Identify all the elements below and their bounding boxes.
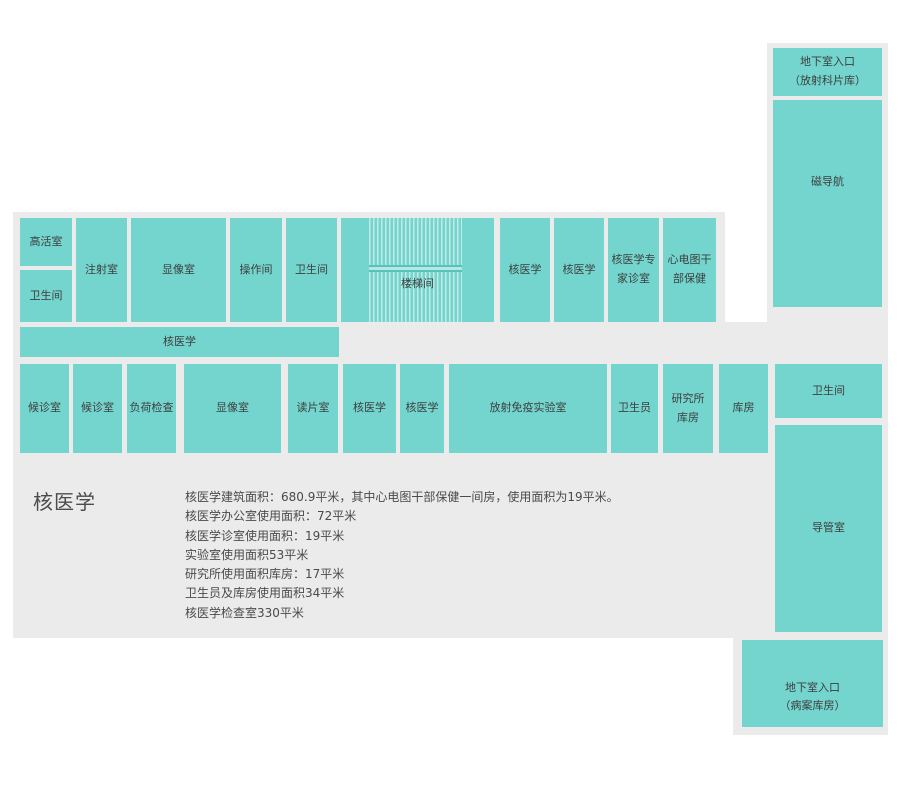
room-nuclear-medicine-1: 核医学 <box>500 218 550 322</box>
summary-title: 核医学 <box>33 486 96 515</box>
summary-line: 核医学检查室330平米 <box>185 604 619 623</box>
room-radioimmunoassay-lab: 放射免疫实验室 <box>449 364 607 453</box>
summary-line: 核医学办公室使用面积：72平米 <box>185 507 619 526</box>
room-magnetic-navigation: 磁导航 <box>773 100 882 307</box>
room-waiting-2: 候诊室 <box>73 364 122 453</box>
summary-line: 研究所使用面积库房：17平米 <box>185 565 619 584</box>
room-nuclear-medicine-corridor: 核医学 <box>20 327 339 357</box>
room-basement-entrance-film-library: 地下室入口 （放射科片库） <box>773 48 882 96</box>
room-imaging-2: 显像室 <box>184 364 281 453</box>
room-nuclear-medicine-2: 核医学 <box>554 218 604 322</box>
room-catheter: 导管室 <box>775 425 882 632</box>
room-nm-expert-clinic: 核医学专 家诊室 <box>608 218 659 322</box>
room-nuclear-medicine-3: 核医学 <box>343 364 396 453</box>
summary-line: 核医学诊室使用面积：19平米 <box>185 527 619 546</box>
room-stairwell: 楼梯间 <box>341 218 494 322</box>
room-toilet-2: 卫生间 <box>286 218 337 322</box>
room-film-reading: 读片室 <box>288 364 338 453</box>
room-injection: 注射室 <box>76 218 127 322</box>
room-toilet-right: 卫生间 <box>775 364 882 418</box>
summary-text-block: 核医学建筑面积：680.9平米，其中心电图干部保健一间房，使用面积为19平米。 … <box>185 488 619 623</box>
summary-line: 实验室使用面积53平米 <box>185 546 619 565</box>
stairwell-label: 楼梯间 <box>341 275 494 294</box>
room-sanitation-staff: 卫生员 <box>611 364 658 453</box>
room-toilet-1: 卫生间 <box>20 270 72 322</box>
room-high-activity: 高活室 <box>20 218 72 266</box>
stairwell-landing-divider <box>369 265 462 272</box>
room-ecg-cadre-care: 心电图干 部保健 <box>663 218 716 322</box>
room-stress-test: 负荷检查 <box>127 364 176 453</box>
room-waiting-1: 候诊室 <box>20 364 69 453</box>
room-nuclear-medicine-4: 核医学 <box>400 364 444 453</box>
room-imaging-1: 显像室 <box>131 218 226 322</box>
room-institute-storage: 研究所 库房 <box>663 364 713 453</box>
room-storage: 库房 <box>719 364 768 453</box>
room-basement-entrance-records: 地下室入口 （病案库房） <box>742 640 883 727</box>
summary-line: 核医学建筑面积：680.9平米，其中心电图干部保健一间房，使用面积为19平米。 <box>185 488 619 507</box>
room-operation: 操作间 <box>230 218 282 322</box>
summary-line: 卫生员及库房使用面积34平米 <box>185 584 619 603</box>
